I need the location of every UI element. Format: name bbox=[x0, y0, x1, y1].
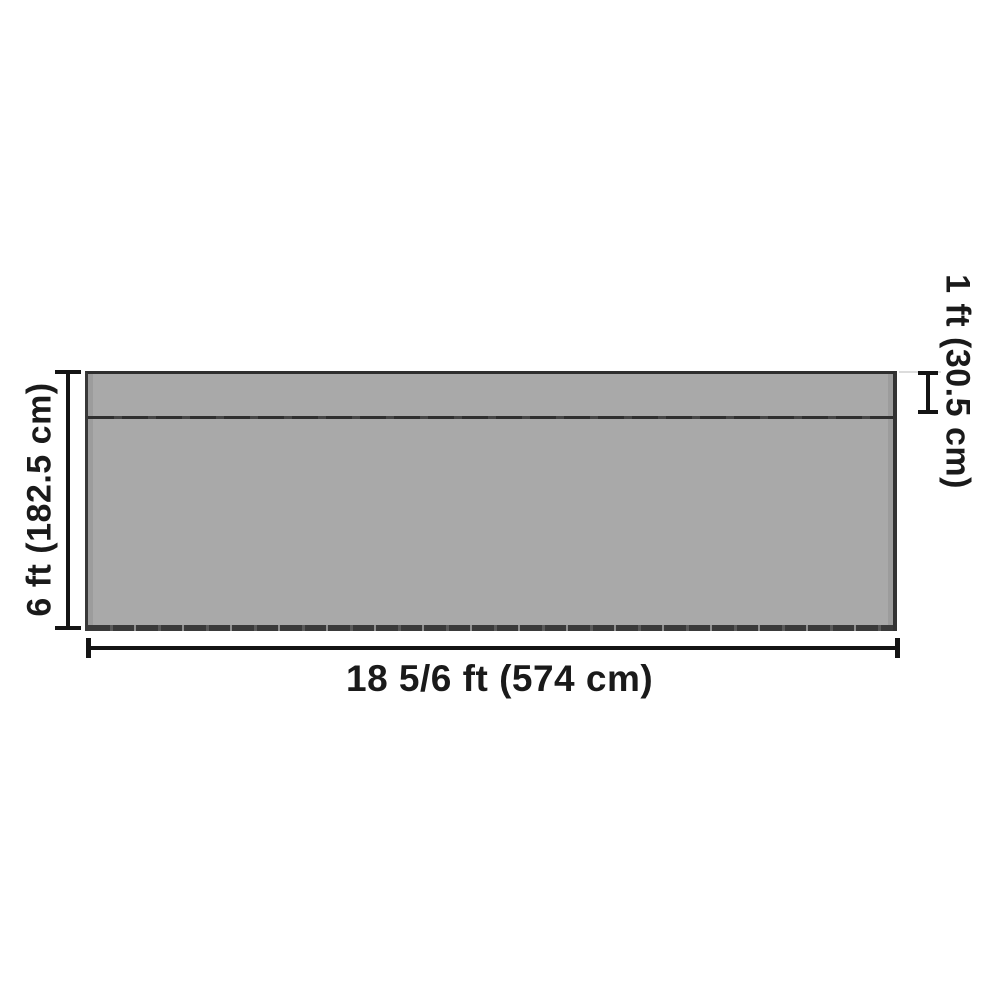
dimension-diagram: 6 ft (182.5 cm) 18 5/6 ft (574 cm) 1 ft … bbox=[0, 0, 1000, 1000]
height-label: 6 ft (182.5 cm) bbox=[21, 350, 60, 650]
top-section-dimension-cap-top bbox=[918, 371, 938, 375]
height-dimension-line bbox=[66, 372, 70, 630]
panel-rectangle bbox=[85, 371, 897, 631]
width-dimension-cap-right bbox=[895, 638, 900, 658]
panel-seam-line bbox=[88, 416, 893, 419]
top-section-label: 1 ft (30.5 cm) bbox=[938, 232, 977, 532]
top-section-dimension-line bbox=[926, 373, 930, 413]
width-label: 18 5/6 ft (574 cm) bbox=[346, 658, 646, 700]
width-dimension-line bbox=[88, 646, 898, 650]
top-section-dimension-cap-bottom bbox=[918, 410, 938, 414]
panel-hem-stitching bbox=[88, 625, 893, 631]
width-dimension-cap-left bbox=[86, 638, 91, 658]
